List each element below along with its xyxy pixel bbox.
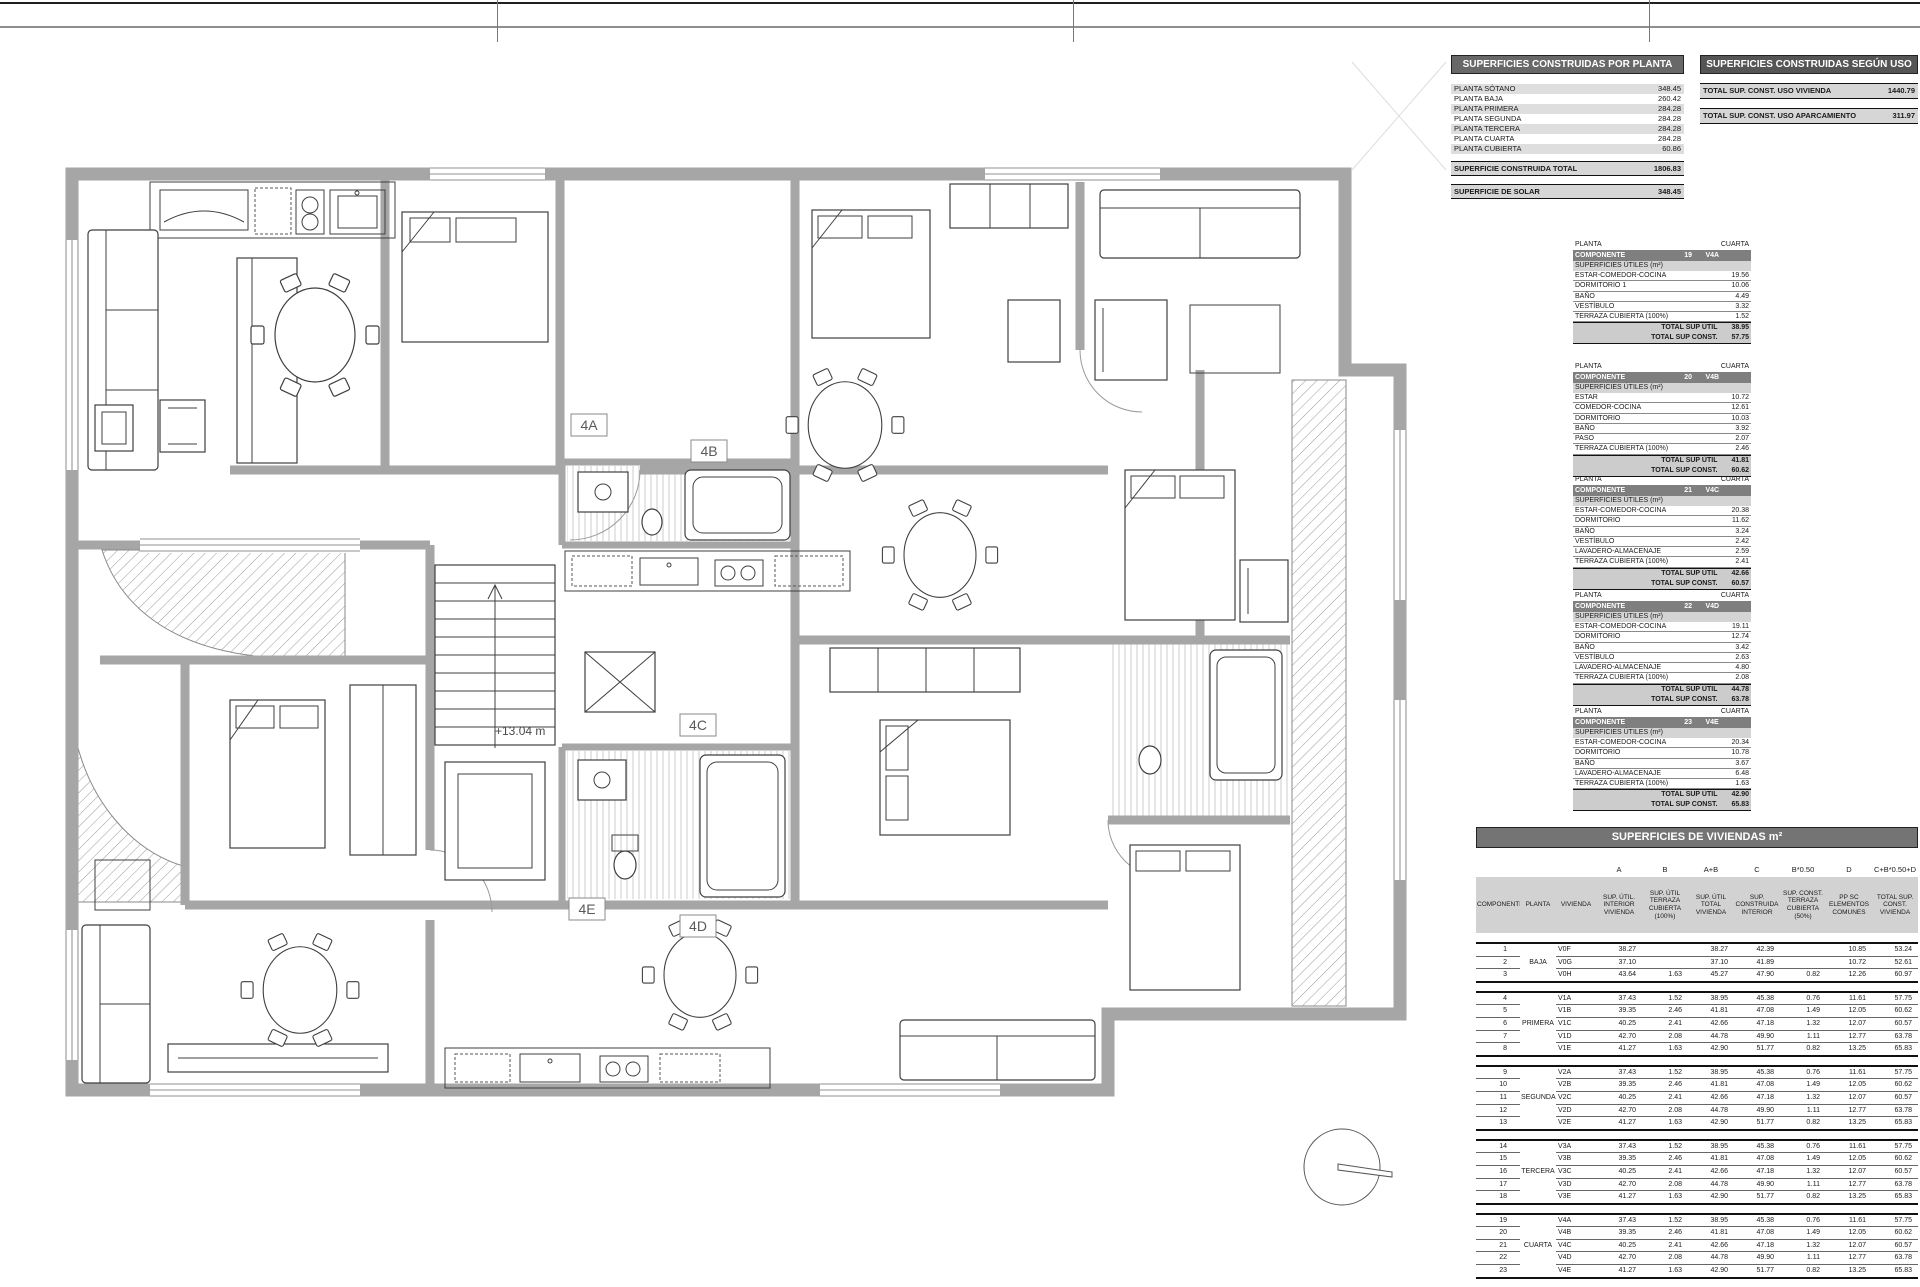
planta-label: PLANTA	[1575, 590, 1602, 601]
value-cell: 57.75	[1872, 1140, 1918, 1153]
row-value: 348.45	[1658, 84, 1681, 94]
row-label: BAÑO	[1575, 424, 1595, 433]
sheet-divider-tick	[1649, 0, 1650, 42]
component-table: PLANTACUARTACOMPONENTE23V4ESUPERFICIES Ú…	[1573, 706, 1751, 811]
table-row: TOTAL SUP. CONST. USO APARCAMIENTO311.97	[1700, 108, 1918, 124]
planta-cell: PRIMERA	[1520, 992, 1556, 1056]
section-label: SUPERFICIES ÚTILES (m²)	[1573, 261, 1751, 271]
row-label: ESTAR-COMEDOR-COCINA	[1575, 506, 1666, 515]
table-row: 9SEGUNDAV2A37.431.5238.9545.380.7611.615…	[1476, 1066, 1918, 1079]
vivienda-cell: V1A	[1556, 992, 1596, 1005]
componente-label: COMPONENTE	[1575, 717, 1671, 728]
row-value: 2.42	[1735, 537, 1749, 546]
formula-cells: ABA+BCB*0.50DC+B*0.50+D	[1476, 862, 1918, 877]
total-label: TOTAL SUP ÚTIL	[1661, 790, 1717, 800]
componente-cell: 18	[1476, 1191, 1520, 1204]
value-cell: 37.10	[1688, 956, 1734, 969]
row-label: PLANTA SÓTANO	[1454, 84, 1515, 94]
value-cell: 41.27	[1596, 1191, 1642, 1204]
value-cell: 42.66	[1688, 1017, 1734, 1030]
value-cell: 11.61	[1826, 1066, 1872, 1079]
row-label: PLANTA PRIMERA	[1454, 104, 1518, 114]
value-cell: 42.90	[1688, 1117, 1734, 1130]
value-cell: 60.57	[1872, 1165, 1918, 1178]
formula-cell: B*0.50	[1780, 862, 1826, 877]
value-cell: 2.46	[1642, 1005, 1688, 1018]
value-cell: 12.05	[1826, 1005, 1872, 1018]
svg-text:4B: 4B	[700, 443, 717, 459]
value-cell: 49.90	[1734, 1030, 1780, 1043]
row-value: 6.48	[1735, 769, 1749, 778]
value-cell: 13.25	[1826, 1117, 1872, 1130]
vivienda-cell: V2B	[1556, 1079, 1596, 1092]
value-cell: 42.70	[1596, 1252, 1642, 1265]
componente-codigo: V4B	[1705, 372, 1749, 383]
row-label: BAÑO	[1575, 292, 1595, 301]
vivienda-cell: V1E	[1556, 1043, 1596, 1056]
row-value: 60.86	[1662, 144, 1681, 154]
value-cell: 38.95	[1688, 1214, 1734, 1227]
dining-table-4b	[786, 368, 904, 482]
value-cell: 45.38	[1734, 992, 1780, 1005]
componente-cell: 8	[1476, 1043, 1520, 1056]
armchair-wing	[1240, 560, 1288, 622]
value-cell: 51.77	[1734, 1191, 1780, 1204]
row-value: 260.42	[1658, 94, 1681, 104]
componente-cell: 10	[1476, 1079, 1520, 1092]
component-table: PLANTACUARTACOMPONENTE19V4ASUPERFICIES Ú…	[1573, 239, 1751, 344]
componente-codigo: V4E	[1705, 717, 1749, 728]
header-cells: COMPONENTEPLANTAVIVIENDASUP. ÚTIL. INTER…	[1476, 877, 1918, 933]
total-value: 42.66	[1731, 569, 1749, 579]
value-cell	[1642, 956, 1688, 969]
value-cell: 38.95	[1688, 992, 1734, 1005]
header-cell: SUP. CONST. TERRAZA CUBIERTA (50%)	[1780, 877, 1826, 933]
floor-group-table: 4PRIMERAV1A37.431.5238.9545.380.7611.615…	[1476, 991, 1918, 1057]
value-cell: 52.61	[1872, 956, 1918, 969]
total-value: 57.75	[1731, 333, 1749, 343]
value-cell: 39.35	[1596, 1005, 1642, 1018]
planta-row: PLANTACUARTA	[1573, 474, 1751, 485]
componente-header-row: COMPONENTE23V4E	[1573, 717, 1751, 728]
value-cell: 63.78	[1872, 1252, 1918, 1265]
row-label: VESTÍBULO	[1575, 537, 1614, 546]
value-cell: 47.08	[1734, 1079, 1780, 1092]
value-cell: 12.07	[1826, 1239, 1872, 1252]
componente-label: COMPONENTE	[1575, 250, 1671, 261]
value-cell: 1.49	[1780, 1227, 1826, 1240]
header-cell: SUP. ÚTIL TOTAL VIVIENDA	[1688, 877, 1734, 933]
value-cell: 12.77	[1826, 1104, 1872, 1117]
value-cell	[1780, 943, 1826, 956]
row-label: PLANTA SEGUNDA	[1454, 114, 1521, 124]
table-row: VESTÍBULO3.32	[1573, 302, 1751, 312]
bed-4a	[402, 212, 548, 342]
total-value: 44.78	[1731, 685, 1749, 695]
vivienda-cell: V2C	[1556, 1091, 1596, 1104]
total-value: 65.83	[1731, 800, 1749, 810]
value-cell: 45.38	[1734, 1066, 1780, 1079]
component-table: PLANTACUARTACOMPONENTE22V4DSUPERFICIES Ú…	[1573, 590, 1751, 706]
row-value: 2.59	[1735, 547, 1749, 556]
planta-value: CUARTA	[1721, 706, 1749, 717]
floor-group-table: 1BAJAV0F38.2738.2742.3910.8553.242V0G37.…	[1476, 942, 1918, 983]
planta-row: PLANTACUARTA	[1573, 706, 1751, 717]
value-cell: 2.41	[1642, 1091, 1688, 1104]
value-cell: 0.76	[1780, 992, 1826, 1005]
row-value: 3.67	[1735, 759, 1749, 768]
value-cell: 0.76	[1780, 1214, 1826, 1227]
value-cell: 51.77	[1734, 1265, 1780, 1278]
svg-text:4D: 4D	[689, 918, 707, 934]
value-cell: 41.27	[1596, 1043, 1642, 1056]
value-cell: 39.35	[1596, 1079, 1642, 1092]
planta-value: CUARTA	[1721, 590, 1749, 601]
unit-label-4d: 4D	[680, 915, 716, 937]
vivienda-cell: V3A	[1556, 1140, 1596, 1153]
componente-cell: 16	[1476, 1165, 1520, 1178]
table-row: BAÑO3.42	[1573, 643, 1751, 653]
table-row: PLANTA PRIMERA284.28	[1451, 104, 1684, 114]
formula-row: ABA+BCB*0.50DC+B*0.50+D	[1476, 862, 1918, 877]
value-cell: 1.63	[1642, 1043, 1688, 1056]
value-cell: 1.11	[1780, 1252, 1826, 1265]
row-value: 3.92	[1735, 424, 1749, 433]
componente-cell: 5	[1476, 1005, 1520, 1018]
formula-cell: A	[1596, 862, 1642, 877]
value-cell: 12.07	[1826, 1091, 1872, 1104]
value-cell: 60.97	[1872, 969, 1918, 982]
row-value: 4.80	[1735, 663, 1749, 672]
value-cell: 47.18	[1734, 1239, 1780, 1252]
row-label: LAVADERO-ALMACENAJE	[1575, 663, 1661, 672]
value-cell: 63.78	[1872, 1030, 1918, 1043]
value-cell: 1.32	[1780, 1017, 1826, 1030]
planta-value: CUARTA	[1721, 239, 1749, 250]
value-cell: 11.61	[1826, 992, 1872, 1005]
elevator	[445, 762, 545, 880]
row-label: ESTAR-COMEDOR-COCINA	[1575, 738, 1666, 747]
value-cell: 60.62	[1872, 1079, 1918, 1092]
table-row: 4PRIMERAV1A37.431.5238.9545.380.7611.615…	[1476, 992, 1918, 1005]
componente-cell: 9	[1476, 1066, 1520, 1079]
componente-numero: 20	[1671, 372, 1706, 383]
table-row: DORMITORIO12.74	[1573, 632, 1751, 642]
section-label: SUPERFICIES ÚTILES (m²)	[1573, 496, 1751, 506]
vivienda-cell: V3E	[1556, 1191, 1596, 1204]
componente-numero: 22	[1671, 601, 1706, 612]
sofa-4d	[900, 1020, 1095, 1080]
value-cell: 41.81	[1688, 1153, 1734, 1166]
table-row: VESTÍBULO2.42	[1573, 537, 1751, 547]
value-cell: 37.43	[1596, 1066, 1642, 1079]
row-label: ESTAR-COMEDOR-COCINA	[1575, 271, 1666, 280]
value-cell: 65.83	[1872, 1043, 1918, 1056]
table-row: BAÑO3.24	[1573, 527, 1751, 537]
row-label: PLANTA CUARTA	[1454, 134, 1514, 144]
row-value: 20.34	[1731, 738, 1749, 747]
row-value: 2.08	[1735, 673, 1749, 682]
total-label: TOTAL SUP ÚTIL	[1661, 685, 1717, 695]
componente-codigo: V4D	[1705, 601, 1749, 612]
value-cell: 63.78	[1872, 1104, 1918, 1117]
value-cell: 41.89	[1734, 956, 1780, 969]
row-value: 19.11	[1732, 622, 1749, 631]
planta-row: PLANTACUARTA	[1573, 590, 1751, 601]
svg-text:4A: 4A	[580, 417, 598, 433]
value-cell: 60.62	[1872, 1227, 1918, 1240]
header-cell: SUP. ÚTIL TERRAZA CUBIERTA (100%)	[1642, 877, 1688, 933]
row-value: 1440.79	[1888, 84, 1915, 98]
total-util-row: TOTAL SUP ÚTIL38.95	[1573, 322, 1751, 333]
bed-wing	[1130, 845, 1240, 990]
value-cell: 2.08	[1642, 1178, 1688, 1191]
row-value: 284.28	[1658, 134, 1681, 144]
vivienda-cell: V3C	[1556, 1165, 1596, 1178]
value-cell: 12.77	[1826, 1252, 1872, 1265]
north-arrow-icon	[1304, 1129, 1392, 1205]
value-cell: 44.78	[1688, 1252, 1734, 1265]
row-label: DORMITORIO 1	[1575, 281, 1626, 290]
table-row: ESTAR10.72	[1573, 393, 1751, 403]
planta-label: PLANTA	[1575, 361, 1602, 372]
value-cell: 47.18	[1734, 1017, 1780, 1030]
row-label: TERRAZA CUBIERTA (100%)	[1575, 779, 1668, 788]
header-cell: PLANTA	[1520, 877, 1556, 933]
formula-cell: D	[1826, 862, 1872, 877]
bed-4d	[880, 720, 1010, 835]
componente-header-row: COMPONENTE21V4C	[1573, 485, 1751, 496]
value-cell: 10.72	[1826, 956, 1872, 969]
value-cell: 2.46	[1642, 1227, 1688, 1240]
value-cell: 1.63	[1642, 1265, 1688, 1278]
value-cell: 12.07	[1826, 1017, 1872, 1030]
row-label: BAÑO	[1575, 759, 1595, 768]
value-cell: 0.82	[1780, 1043, 1826, 1056]
total-value: 38.95	[1731, 323, 1749, 333]
value-cell: 12.77	[1826, 1178, 1872, 1191]
vivienda-cell: V0F	[1556, 943, 1596, 956]
table-superficies-por-planta: SUPERFICIES CONSTRUIDAS POR PLANTA PLANT…	[1451, 55, 1684, 199]
table-row: LAVADERO-ALMACENAJE6.48	[1573, 769, 1751, 779]
table-row: BAÑO3.67	[1573, 759, 1751, 769]
value-cell: 47.18	[1734, 1091, 1780, 1104]
svg-text:4C: 4C	[689, 717, 707, 733]
formula-cell	[1520, 862, 1556, 877]
row-value: 4.49	[1735, 292, 1749, 301]
table-superficies-viviendas: SUPERFICIES DE VIVIENDAS m² ABA+BCB*0.50…	[1476, 827, 1918, 1287]
row-value: 3.32	[1735, 302, 1749, 311]
value-cell: 12.26	[1826, 969, 1872, 982]
value-cell: 45.38	[1734, 1140, 1780, 1153]
row-label: TERRAZA CUBIERTA (100%)	[1575, 312, 1668, 321]
total-const-row: TOTAL SUP CONST.60.57	[1573, 579, 1751, 590]
table-row: VESTÍBULO2.63	[1573, 653, 1751, 663]
value-cell: 44.78	[1688, 1030, 1734, 1043]
row-value: 2.07	[1735, 434, 1749, 443]
value-cell: 0.76	[1780, 1066, 1826, 1079]
solar-value: 348.45	[1658, 185, 1681, 198]
value-cell: 11.61	[1826, 1140, 1872, 1153]
total-label: TOTAL SUP CONST.	[1651, 333, 1717, 343]
table-row: TOTAL SUP. CONST. USO VIVIENDA1440.79	[1700, 83, 1918, 99]
value-cell: 0.76	[1780, 1140, 1826, 1153]
value-cell: 42.66	[1688, 1165, 1734, 1178]
value-cell: 51.77	[1734, 1043, 1780, 1056]
row-label: ESTAR	[1575, 393, 1598, 402]
value-cell: 2.08	[1642, 1030, 1688, 1043]
value-cell: 41.81	[1688, 1005, 1734, 1018]
table-row: PASO2.07	[1573, 434, 1751, 444]
table-superficies-segun-uso: SUPERFICIES CONSTRUIDAS SEGÚN USO TOTAL …	[1700, 55, 1918, 124]
total-value: 41.81	[1731, 456, 1749, 466]
row-label: TERRAZA CUBIERTA (100%)	[1575, 673, 1668, 682]
row-label: VESTÍBULO	[1575, 653, 1614, 662]
table-row: DORMITORIO10.03	[1573, 414, 1751, 424]
planta-cell: CUARTA	[1520, 1214, 1556, 1278]
value-cell: 1.32	[1780, 1239, 1826, 1252]
table-row: PLANTA TERCERA284.28	[1451, 124, 1684, 134]
value-cell: 51.77	[1734, 1117, 1780, 1130]
componente-cell: 7	[1476, 1030, 1520, 1043]
value-cell: 38.95	[1688, 1140, 1734, 1153]
table-row: LAVADERO-ALMACENAJE2.59	[1573, 547, 1751, 557]
value-cell: 38.27	[1596, 943, 1642, 956]
value-cell: 1.11	[1780, 1104, 1826, 1117]
vivienda-cell: V1D	[1556, 1030, 1596, 1043]
value-cell: 40.25	[1596, 1091, 1642, 1104]
header-cell: PP SC ELEMENTOS COMUNES	[1826, 877, 1872, 933]
total-label: TOTAL SUP CONST.	[1651, 800, 1717, 810]
table-row: TERRAZA CUBIERTA (100%)2.46	[1573, 444, 1751, 454]
row-value: 284.28	[1658, 104, 1681, 114]
formula-cell	[1556, 862, 1596, 877]
table-row: DORMITORIO 110.06	[1573, 281, 1751, 291]
formula-cell	[1476, 862, 1520, 877]
value-cell: 1.52	[1642, 992, 1688, 1005]
table-row: TERRAZA CUBIERTA (100%)1.63	[1573, 779, 1751, 789]
total-util-row: TOTAL SUP ÚTIL42.90	[1573, 789, 1751, 800]
value-cell: 49.90	[1734, 1252, 1780, 1265]
componente-cell: 14	[1476, 1140, 1520, 1153]
componente-label: COMPONENTE	[1575, 372, 1671, 383]
vivienda-cell: V4B	[1556, 1227, 1596, 1240]
total-value: 60.57	[1731, 579, 1749, 589]
viviendas-groups: 1BAJAV0F38.2738.2742.3910.8553.242V0G37.…	[1476, 942, 1918, 1279]
value-cell: 1.52	[1642, 1214, 1688, 1227]
planta-row: PLANTACUARTA	[1573, 239, 1751, 250]
value-cell: 42.70	[1596, 1178, 1642, 1191]
dining-table-4e	[241, 933, 359, 1047]
total-label: TOTAL SUP ÚTIL	[1661, 456, 1717, 466]
table-row: PLANTA BAJA260.42	[1451, 94, 1684, 104]
planta-label: PLANTA	[1575, 706, 1602, 717]
value-cell: 1.32	[1780, 1091, 1826, 1104]
value-cell: 47.90	[1734, 969, 1780, 982]
row-label: TERRAZA CUBIERTA (100%)	[1575, 444, 1668, 453]
value-cell: 2.41	[1642, 1017, 1688, 1030]
total-value: 1806.83	[1654, 162, 1681, 175]
row-value: 19.56	[1731, 271, 1749, 280]
value-cell: 2.08	[1642, 1252, 1688, 1265]
vivienda-cell: V0G	[1556, 956, 1596, 969]
value-cell: 1.52	[1642, 1066, 1688, 1079]
vivienda-cell: V4E	[1556, 1265, 1596, 1278]
componente-cell: 22	[1476, 1252, 1520, 1265]
total-label: TOTAL SUP CONST.	[1651, 579, 1717, 589]
header-cell: COMPONENTE	[1476, 877, 1520, 933]
value-cell: 37.43	[1596, 1140, 1642, 1153]
value-cell: 0.82	[1780, 1265, 1826, 1278]
kitchen-4e	[445, 1048, 770, 1088]
row-value: 1.63	[1735, 779, 1749, 788]
row-value: 3.42	[1735, 643, 1749, 652]
value-cell: 57.75	[1872, 1214, 1918, 1227]
value-cell: 42.66	[1688, 1091, 1734, 1104]
planta-cell: BAJA	[1520, 943, 1556, 982]
segun-uso-rows: TOTAL SUP. CONST. USO VIVIENDA1440.79TOT…	[1700, 83, 1918, 124]
value-cell: 65.83	[1872, 1117, 1918, 1130]
value-cell: 60.57	[1872, 1091, 1918, 1104]
total-value: 63.78	[1731, 695, 1749, 705]
value-cell: 41.27	[1596, 1117, 1642, 1130]
value-cell: 39.35	[1596, 1227, 1642, 1240]
componente-numero: 21	[1671, 485, 1706, 496]
value-cell: 63.78	[1872, 1178, 1918, 1191]
value-cell: 1.32	[1780, 1165, 1826, 1178]
row-value: 10.78	[1731, 748, 1749, 757]
formula-cell: C	[1734, 862, 1780, 877]
value-cell: 11.61	[1826, 1214, 1872, 1227]
value-cell: 2.46	[1642, 1153, 1688, 1166]
table-title: SUPERFICIES CONSTRUIDAS POR PLANTA	[1451, 55, 1684, 74]
formula-cell: A+B	[1688, 862, 1734, 877]
kitchen-4b	[565, 551, 850, 591]
superficie-solar-row: SUPERFICIE DE SOLAR 348.45	[1451, 184, 1684, 199]
value-cell: 42.70	[1596, 1104, 1642, 1117]
value-cell: 40.25	[1596, 1239, 1642, 1252]
value-cell: 13.25	[1826, 1265, 1872, 1278]
row-label: DORMITORIO	[1575, 414, 1620, 423]
value-cell: 10.85	[1826, 943, 1872, 956]
shaft-icon	[585, 652, 655, 712]
componente-codigo: V4C	[1705, 485, 1749, 496]
table-row: LAVADERO-ALMACENAJE4.80	[1573, 663, 1751, 673]
value-cell: 1.63	[1642, 1191, 1688, 1204]
bed-4c	[1125, 470, 1235, 620]
table-row: ESTAR-COMEDOR-COCINA19.11	[1573, 622, 1751, 632]
componente-cell: 12	[1476, 1104, 1520, 1117]
value-cell: 44.78	[1688, 1104, 1734, 1117]
component-table: PLANTACUARTACOMPONENTE20V4BSUPERFICIES Ú…	[1573, 361, 1751, 477]
row-value: 12.74	[1731, 632, 1749, 641]
value-cell: 49.90	[1734, 1178, 1780, 1191]
table-row: ESTAR-COMEDOR-COCINA19.56	[1573, 271, 1751, 281]
table-row: 19CUARTAV4A37.431.5238.9545.380.7611.615…	[1476, 1214, 1918, 1227]
value-cell	[1642, 943, 1688, 956]
row-value: 12.61	[1731, 403, 1749, 412]
table-row: 1BAJAV0F38.2738.2742.3910.8553.24	[1476, 943, 1918, 956]
row-label: DORMITORIO	[1575, 632, 1620, 641]
total-const-row: TOTAL SUP CONST.57.75	[1573, 333, 1751, 344]
value-cell: 0.82	[1780, 1117, 1826, 1130]
row-label: PASO	[1575, 434, 1594, 443]
componente-label: COMPONENTE	[1575, 601, 1671, 612]
bed-4e	[230, 700, 325, 848]
componente-cell: 11	[1476, 1091, 1520, 1104]
vivienda-cell: V4C	[1556, 1239, 1596, 1252]
vivienda-cell: V2D	[1556, 1104, 1596, 1117]
